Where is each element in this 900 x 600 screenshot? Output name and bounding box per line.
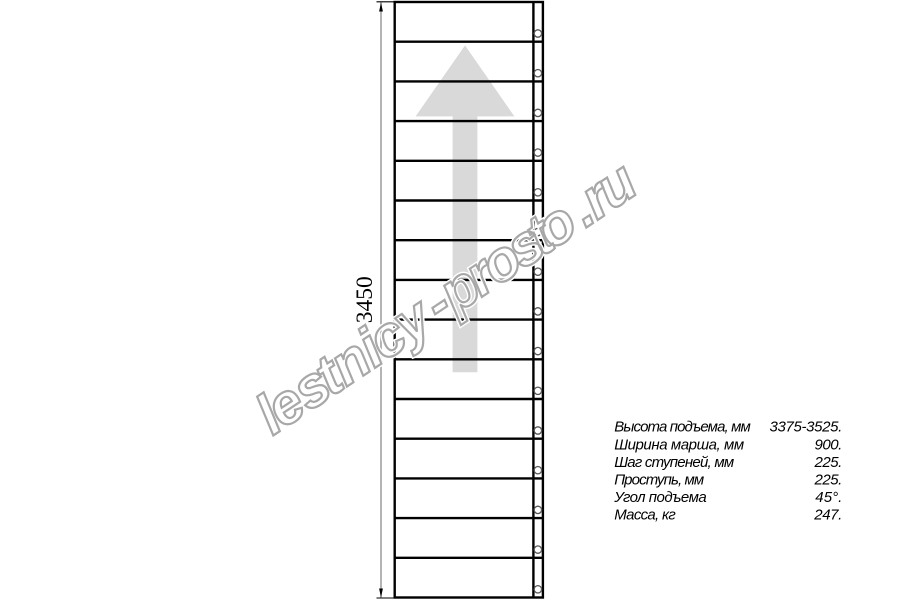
svg-text:3375-3525.: 3375-3525. bbox=[770, 419, 843, 436]
svg-text:lestnicy-prosto.ru: lestnicy-prosto.ru bbox=[244, 149, 648, 447]
svg-text:225.: 225. bbox=[814, 454, 843, 471]
svg-text:Ширина марша, мм: Ширина марша, мм bbox=[614, 436, 744, 453]
svg-text:247.: 247. bbox=[813, 507, 842, 524]
svg-text:900.: 900. bbox=[815, 436, 843, 453]
svg-text:225.: 225. bbox=[814, 472, 843, 489]
svg-text:Угол подъема: Угол подъема bbox=[613, 489, 707, 506]
svg-text:45°.: 45°. bbox=[815, 489, 842, 506]
svg-text:Высота подъема, мм: Высота подъема, мм bbox=[614, 419, 751, 436]
svg-text:Масса, кг: Масса, кг bbox=[614, 507, 676, 524]
svg-text:Шаг ступеней, мм: Шаг ступеней, мм bbox=[614, 454, 734, 471]
svg-text:Проступь, мм: Проступь, мм bbox=[614, 472, 704, 489]
